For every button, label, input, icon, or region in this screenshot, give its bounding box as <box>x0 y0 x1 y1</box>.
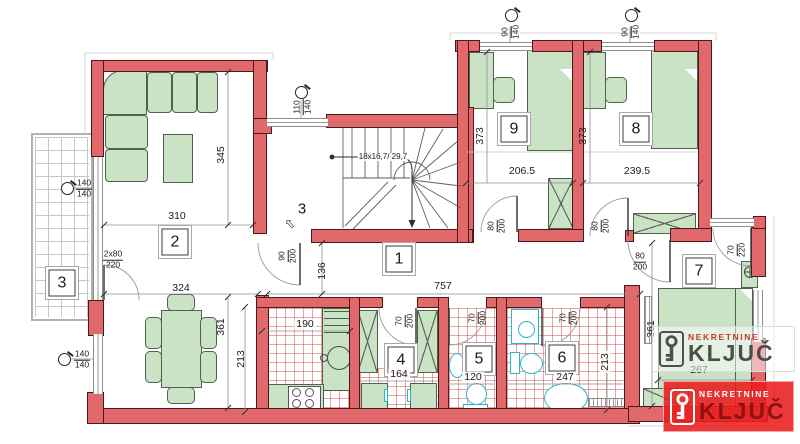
door-dim-70-200-room4-denominator: 200 <box>406 313 416 329</box>
toilet-bowl-room6 <box>520 353 543 374</box>
room-label-9: 9 <box>501 116 528 143</box>
desk-room8 <box>581 52 606 109</box>
wall <box>87 408 640 424</box>
floor-plan: NEKRETNINE KLJUČ NEKRETNINE KLJUČ 123456… <box>0 0 800 444</box>
stair-walk-line <box>330 155 416 228</box>
window-room7-top <box>710 218 754 227</box>
watermark-logo-transparent: NEKRETNINE KLJUČ <box>652 326 795 372</box>
dim-310: 310 <box>168 211 186 222</box>
room-label-3: 3 <box>49 270 76 297</box>
win-dim-140-140-lower-denominator: 140 <box>74 361 90 371</box>
win-dim-90-140-right-denominator: 140 <box>632 24 642 40</box>
window-marker-balcony <box>61 182 74 195</box>
room-label-5: 5 <box>466 346 493 373</box>
wall <box>357 297 383 308</box>
key-icon <box>670 389 695 425</box>
win-dim-140-140-upper: 140140 <box>76 179 92 200</box>
door-dim-70-200-room6: 70200 <box>559 310 580 326</box>
watermark-text: NEKRETNINE KLJUČ <box>688 333 775 366</box>
dim-757: 757 <box>434 281 452 292</box>
staircase <box>343 128 461 229</box>
window-marker-stair <box>295 86 308 99</box>
door-dim-80-200-room7: 80200 <box>632 252 648 273</box>
door-dim-70-220-room7-denominator: 220 <box>738 242 748 258</box>
win-dim-110-140-denominator: 140 <box>304 99 314 115</box>
room-label-6: 6 <box>549 345 576 372</box>
win-dim-140-140-lower: 140140 <box>74 350 90 371</box>
window-room9 <box>480 42 532 51</box>
kitchen-sink <box>327 346 351 370</box>
watermark-name: KLJUČ <box>688 342 775 365</box>
wall <box>698 40 712 232</box>
dim-190: 190 <box>294 319 316 330</box>
window-room8 <box>602 42 654 51</box>
win-dim-90-140-left: 90140 <box>501 24 522 40</box>
door-dim-2x80-220: 2x80220 <box>103 250 123 271</box>
door-dim-80-200-room7-denominator: 200 <box>632 263 648 273</box>
window-marker-room8 <box>625 9 638 22</box>
sofa-cushion <box>105 115 148 149</box>
dim-373-right: 373 <box>578 127 589 145</box>
door-dim-70-220-room7: 70220 <box>727 242 748 258</box>
dining-table <box>161 310 202 388</box>
wall <box>625 230 634 242</box>
win-dim-140-140-upper-denominator: 140 <box>76 190 92 200</box>
wall <box>751 227 766 277</box>
window-living <box>93 157 103 232</box>
chair-room8 <box>605 77 627 103</box>
chair-room9 <box>493 77 515 103</box>
wall <box>580 297 626 308</box>
wall <box>486 297 542 308</box>
toilet-bowl-room5 <box>466 383 487 405</box>
shower-cabinet <box>417 310 438 373</box>
sofa-cushion <box>172 72 197 113</box>
door-dim-70-200-room5-denominator: 200 <box>479 310 489 326</box>
sofa-cushion <box>197 72 218 113</box>
dim-361-left: 361 <box>216 318 227 336</box>
wall <box>88 300 104 336</box>
balcony-door-glass <box>93 232 103 300</box>
wall <box>91 60 104 157</box>
stove-burner <box>292 399 301 408</box>
stove-burner <box>305 388 314 397</box>
blanket-fold <box>740 289 752 301</box>
shower-handle <box>384 389 388 402</box>
washing-machine <box>511 309 539 344</box>
door-dim-80-200-room9: 80200 <box>487 218 508 234</box>
window-marker-dining <box>58 353 71 366</box>
wall <box>496 297 507 417</box>
door-dim-80-200-room8: 80200 <box>591 218 612 234</box>
entrance-arrow-icon: ⇧ <box>282 216 299 233</box>
desk-room9 <box>469 52 494 109</box>
sofa-cushion <box>105 149 148 182</box>
dim-136: 136 <box>317 262 328 280</box>
dim-247: 247 <box>554 372 576 383</box>
door-dim-70-200-room4: 70200 <box>395 313 416 329</box>
dining-chair <box>145 317 162 349</box>
dim-213-left: 213 <box>236 350 247 368</box>
door-dim-70-200-room6-denominator: 200 <box>570 310 580 326</box>
door-dim-80-200-room9-denominator: 200 <box>498 218 508 234</box>
stove-burner <box>292 388 301 397</box>
wall <box>256 295 269 417</box>
dim-239-5: 239.5 <box>624 166 650 177</box>
dim-373-left: 373 <box>475 127 486 145</box>
dining-chair <box>200 351 217 383</box>
wardrobe-room9 <box>548 178 574 229</box>
wall <box>93 60 268 72</box>
dim-120: 120 <box>462 372 484 383</box>
wall <box>624 285 640 424</box>
door-dim-70-200-room5: 70200 <box>468 310 489 326</box>
wall <box>256 297 357 308</box>
bed-room8 <box>651 50 698 149</box>
window-marker-room9 <box>505 9 518 22</box>
dim-213-right: 213 <box>600 351 611 373</box>
dining-chair <box>167 387 195 404</box>
sofa-corner <box>103 70 147 115</box>
room-label-2: 2 <box>162 229 189 256</box>
win-dim-90-140-left-denominator: 140 <box>512 24 522 40</box>
shower-handle <box>407 389 411 402</box>
coffee-table <box>163 134 193 183</box>
kitchen-shelves <box>324 311 350 339</box>
dim-164: 164 <box>388 369 410 380</box>
window-dining <box>93 334 103 394</box>
room-label-1: 1 <box>386 246 413 273</box>
wall <box>438 297 449 417</box>
entrance-number: 3 <box>298 202 306 217</box>
wall <box>518 229 584 242</box>
wall <box>670 228 712 242</box>
room-label-8: 8 <box>623 116 650 143</box>
door-dim-2x80-220-denominator: 220 <box>105 261 121 271</box>
dim-324: 324 <box>172 283 190 294</box>
kitchen-faucet <box>320 354 328 362</box>
shower-tray <box>410 383 437 409</box>
door-dim-90-200: 90200 <box>278 248 299 264</box>
dim-206-5: 206.5 <box>509 166 535 177</box>
dining-chair <box>167 294 195 311</box>
dining-chair <box>145 351 162 383</box>
bed-room9 <box>527 50 573 151</box>
wall <box>532 40 602 52</box>
wall <box>457 40 469 243</box>
stair-note: 18x16,7/ 29,7 <box>358 153 408 161</box>
wall <box>311 229 473 243</box>
blanket-fold <box>560 69 572 81</box>
stove-burner <box>305 399 314 408</box>
door-dim-90-200-denominator: 200 <box>289 248 299 264</box>
wall <box>87 392 104 424</box>
wall <box>349 297 360 417</box>
sofa-cushion <box>147 72 172 113</box>
room-label-7: 7 <box>686 258 713 285</box>
dim-345: 345 <box>216 146 227 164</box>
watermark-text: NEKRETNINE KLJUČ <box>699 390 786 423</box>
key-icon <box>659 331 684 367</box>
watermark-logo-red: NEKRETNINE KLJUČ <box>663 381 794 432</box>
win-dim-110-140: 110140 <box>293 99 314 115</box>
shower-cabinet <box>357 310 378 373</box>
wall <box>326 114 465 128</box>
window-stairwell <box>267 118 328 127</box>
bath-mat <box>588 398 626 407</box>
wall <box>253 60 267 234</box>
toilet-tank-room6 <box>510 352 520 374</box>
wall <box>753 216 766 229</box>
blanket-fold <box>685 69 697 81</box>
watermark-name: KLJUČ <box>699 400 786 423</box>
door-dim-80-200-room8-denominator: 200 <box>602 218 612 234</box>
win-dim-90-140-right: 90140 <box>621 24 642 40</box>
